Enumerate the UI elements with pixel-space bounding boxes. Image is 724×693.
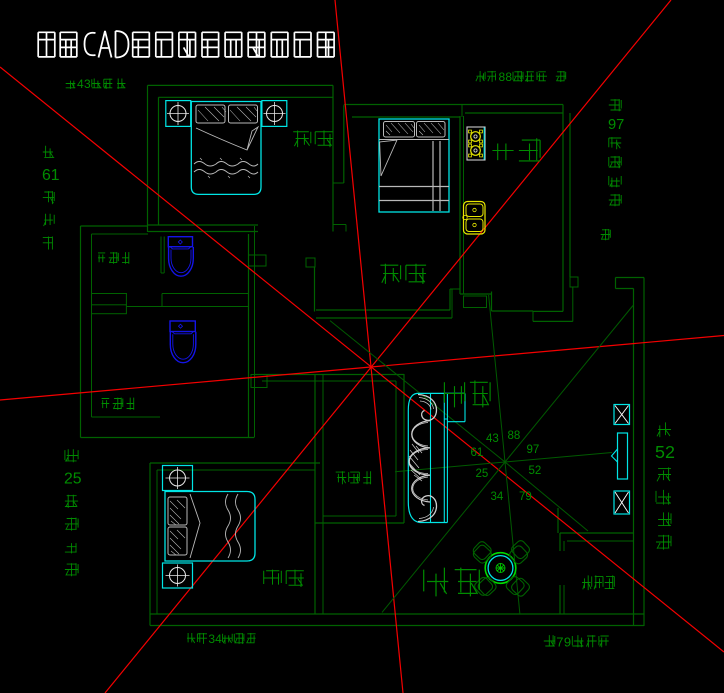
svg-text:25: 25 [476,468,489,480]
svg-text:7: 7 [556,634,563,649]
svg-text:4: 4 [215,632,222,646]
svg-text:25: 25 [64,471,82,488]
svg-text:3: 3 [84,77,91,91]
svg-text:52: 52 [529,465,542,477]
svg-text:79: 79 [519,491,532,503]
svg-text:88: 88 [508,430,521,442]
svg-text:8: 8 [505,70,512,84]
svg-text:9: 9 [564,634,571,649]
svg-text:97: 97 [608,117,624,133]
svg-text:61: 61 [471,447,484,459]
svg-text:61: 61 [42,167,60,184]
svg-text:34: 34 [491,491,504,503]
svg-text:97: 97 [527,444,540,456]
svg-text:43: 43 [486,433,499,445]
svg-text:52: 52 [655,442,675,462]
svg-text:4: 4 [77,77,84,91]
